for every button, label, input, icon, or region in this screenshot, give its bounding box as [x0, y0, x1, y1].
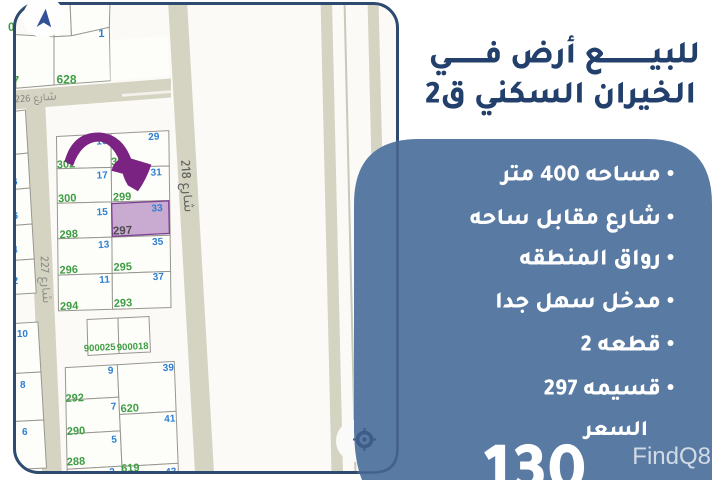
- svg-text:298: 298: [59, 228, 78, 241]
- svg-text:620: 620: [120, 402, 139, 415]
- svg-text:900025: 900025: [84, 342, 117, 355]
- svg-text:292: 292: [65, 392, 84, 405]
- svg-text:296: 296: [59, 264, 78, 277]
- svg-text:33: 33: [151, 203, 163, 215]
- svg-text:FindQ8: FindQ8: [632, 443, 711, 470]
- svg-text:295: 295: [113, 261, 132, 274]
- svg-text:290: 290: [67, 425, 86, 438]
- svg-text:288: 288: [67, 456, 86, 469]
- svg-text:9: 9: [108, 365, 115, 376]
- svg-text:10: 10: [17, 329, 29, 340]
- svg-text:11: 11: [99, 274, 111, 286]
- svg-text:300: 300: [58, 192, 77, 205]
- svg-text:15: 15: [96, 207, 108, 219]
- svg-text:294: 294: [60, 300, 80, 313]
- svg-text:39: 39: [162, 362, 174, 374]
- svg-text:41: 41: [164, 413, 176, 425]
- svg-text:7: 7: [111, 401, 118, 412]
- svg-text:35: 35: [152, 237, 164, 249]
- svg-text:297: 297: [113, 225, 133, 238]
- svg-text:8: 8: [20, 380, 26, 391]
- svg-text:5: 5: [111, 434, 118, 445]
- svg-text:293: 293: [114, 297, 133, 310]
- svg-text:299: 299: [113, 191, 132, 204]
- svg-text:6: 6: [22, 427, 28, 438]
- svg-text:29: 29: [148, 131, 160, 143]
- svg-text:17: 17: [96, 170, 108, 182]
- svg-text:31: 31: [150, 167, 162, 179]
- svg-text:628: 628: [57, 72, 77, 86]
- svg-text:900018: 900018: [117, 341, 149, 354]
- svg-text:37: 37: [152, 272, 164, 284]
- svg-text:1: 1: [98, 28, 104, 40]
- svg-text:13: 13: [98, 239, 110, 251]
